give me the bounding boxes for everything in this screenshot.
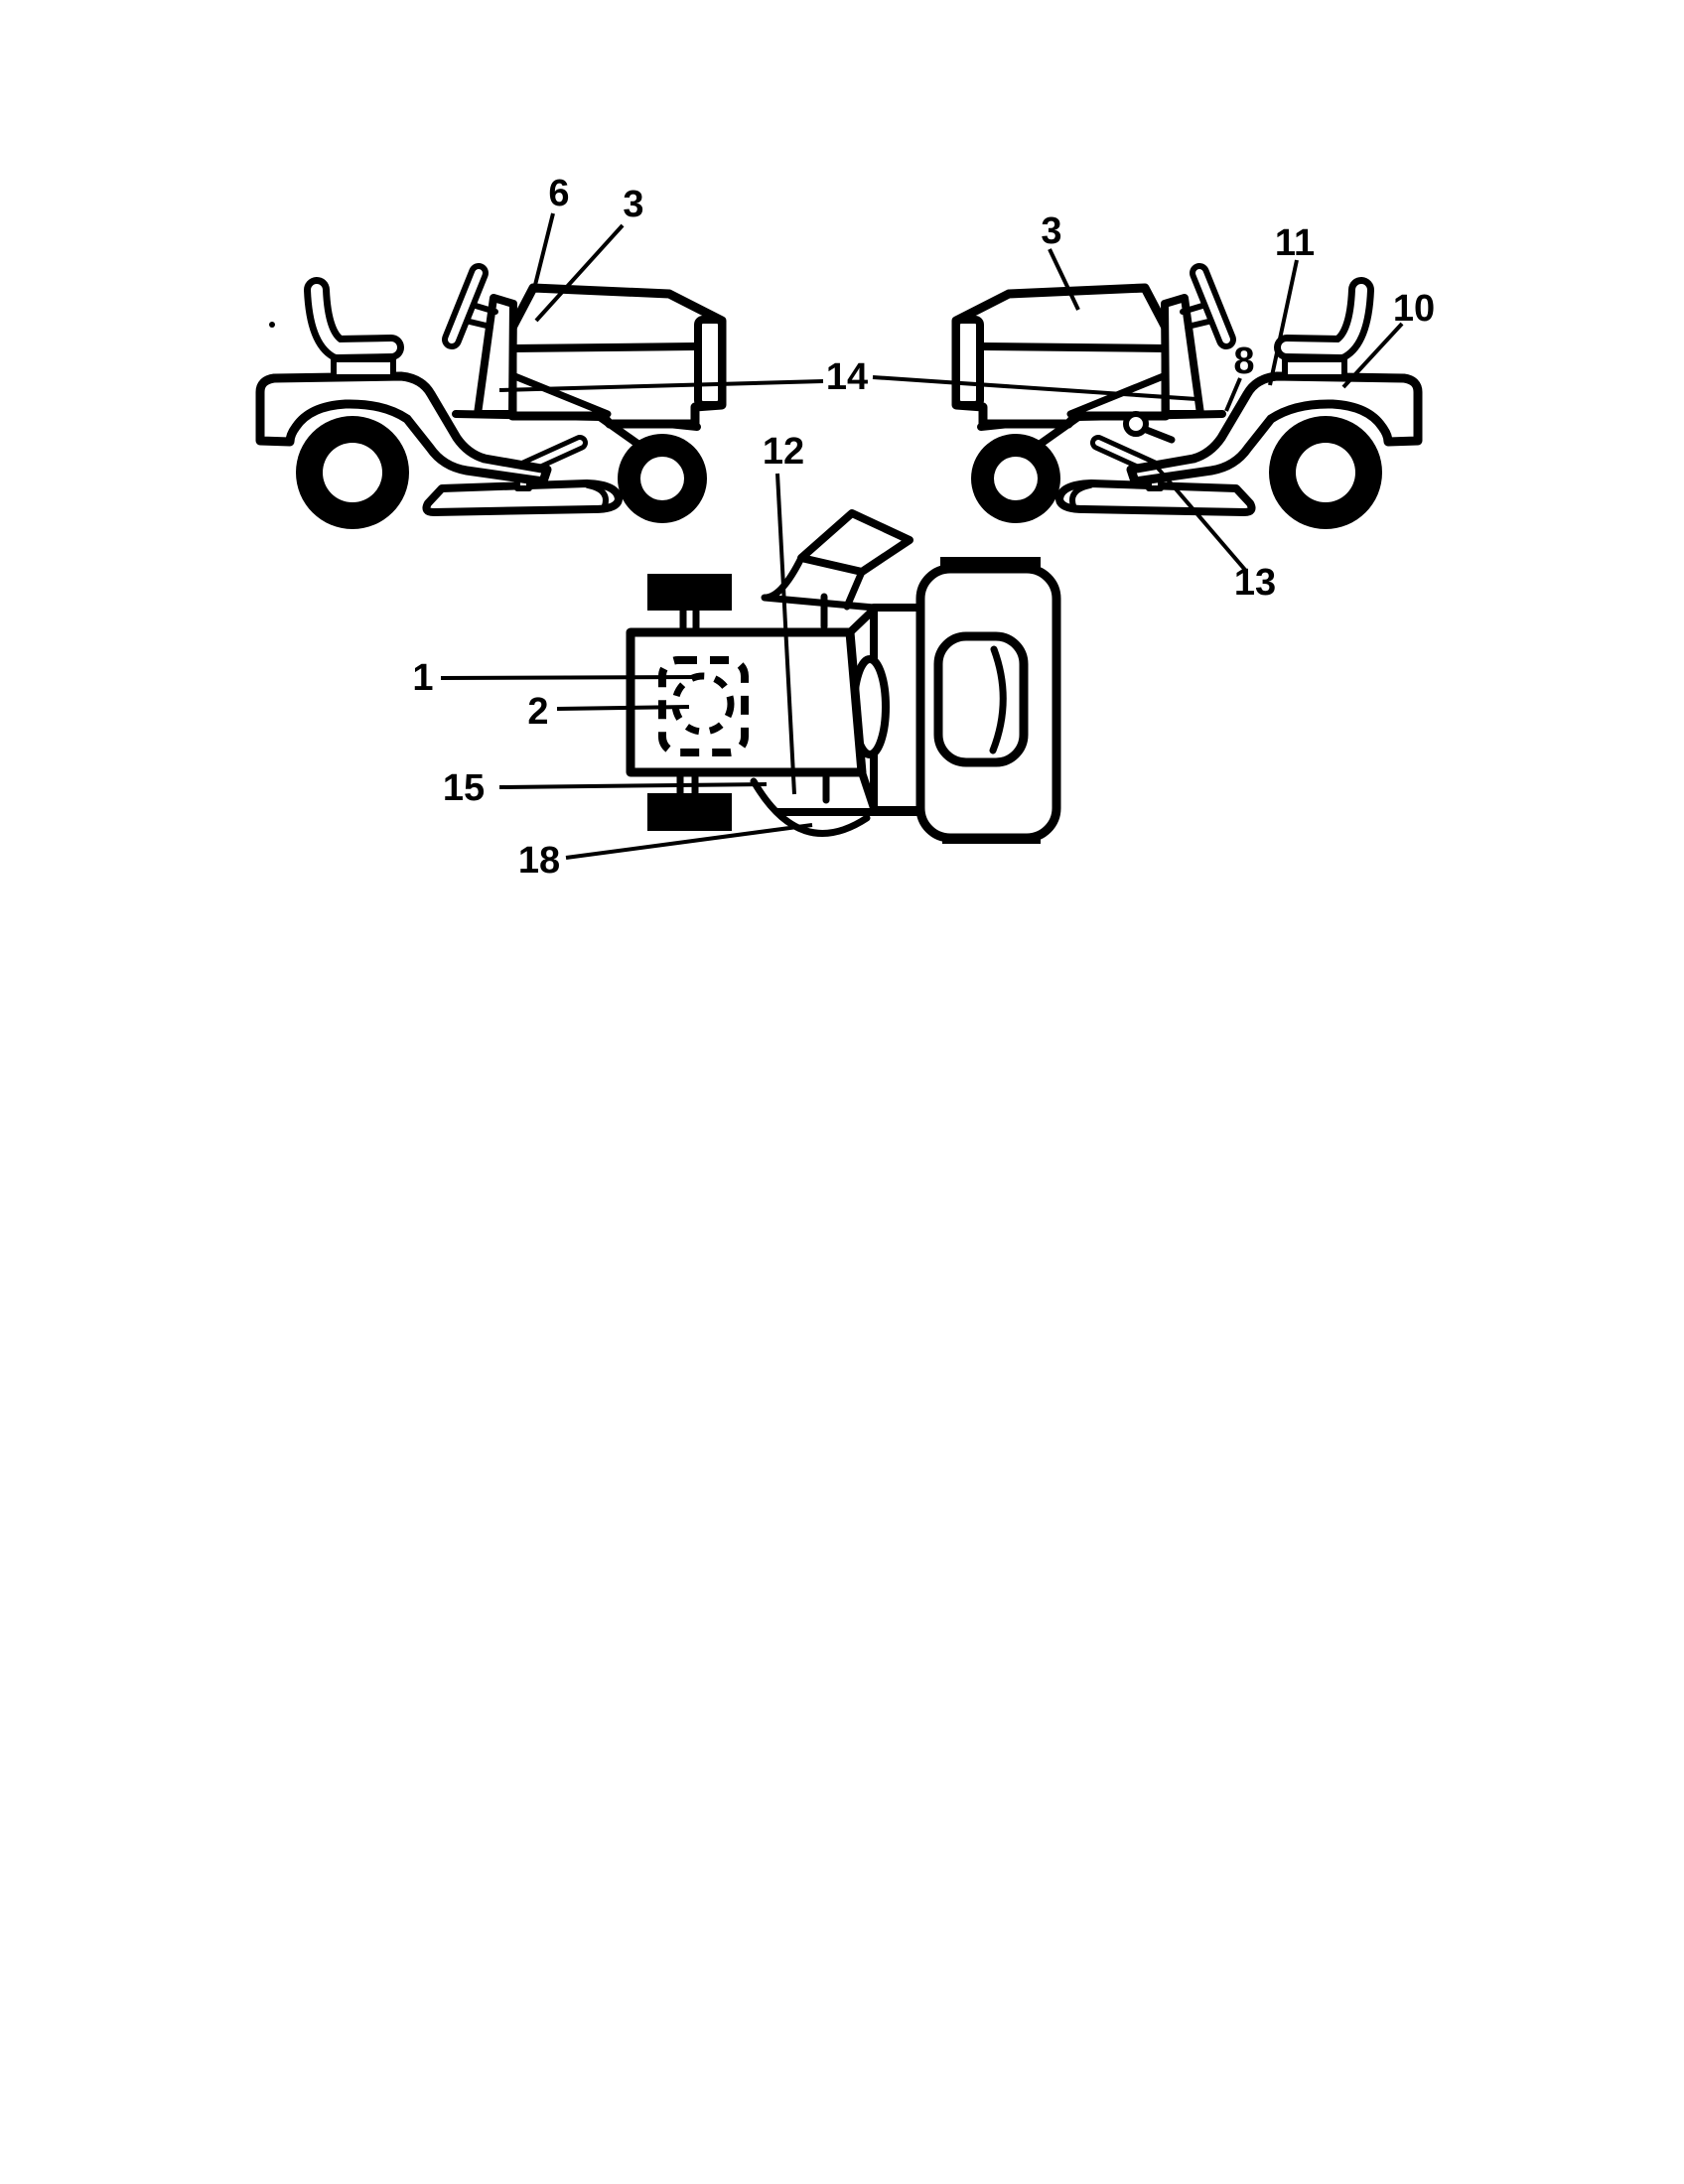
front-left-wheel-top (647, 574, 732, 611)
front-bumper (698, 320, 722, 405)
callout-2: 2 (527, 691, 548, 733)
callout-6: 6 (548, 173, 569, 214)
rear-wheel-hub (323, 443, 382, 502)
callout-18: 18 (518, 840, 560, 882)
right-tractor-side-view (956, 273, 1418, 529)
callout-11: 11 (1275, 222, 1315, 264)
callout-13: 13 (1234, 562, 1276, 604)
callout-2-leader-1 (557, 707, 689, 709)
parts-diagram: 12363810111213141518 (0, 0, 1684, 2184)
callout-1: 1 (412, 657, 433, 699)
callout-1-leader-1 (441, 677, 701, 678)
callout-10: 10 (1393, 288, 1435, 330)
body-top-edge (765, 598, 874, 608)
callout-8: 8 (1233, 341, 1254, 382)
mirrored-tractor (956, 273, 1418, 529)
scan-speck (269, 322, 275, 328)
callout-3-left: 3 (623, 184, 643, 225)
chute-connector-right (847, 572, 862, 607)
discharge-chute (801, 513, 910, 572)
scanned-page: 12363810111213141518 (0, 0, 1684, 2184)
callout-12: 12 (763, 431, 804, 473)
callout-3-right: 3 (1041, 210, 1061, 252)
hood-stripe-line (513, 346, 695, 348)
seat-pedestal (334, 359, 393, 377)
callout-13-leader-1 (1155, 465, 1245, 570)
callout-15: 15 (443, 767, 485, 809)
front-wheel-hub (640, 457, 684, 500)
callout-6-leader-1 (534, 213, 553, 289)
callout-14: 14 (826, 356, 868, 398)
left-tractor-side-view (260, 273, 722, 529)
callout-15-leader-1 (499, 784, 767, 787)
hood (512, 288, 722, 424)
lever-knob (1126, 414, 1146, 434)
steering-column (478, 298, 513, 414)
lever-knob-stem (1144, 429, 1172, 440)
front-right-wheel-top (647, 793, 732, 831)
seat-cushion-top (938, 636, 1024, 762)
